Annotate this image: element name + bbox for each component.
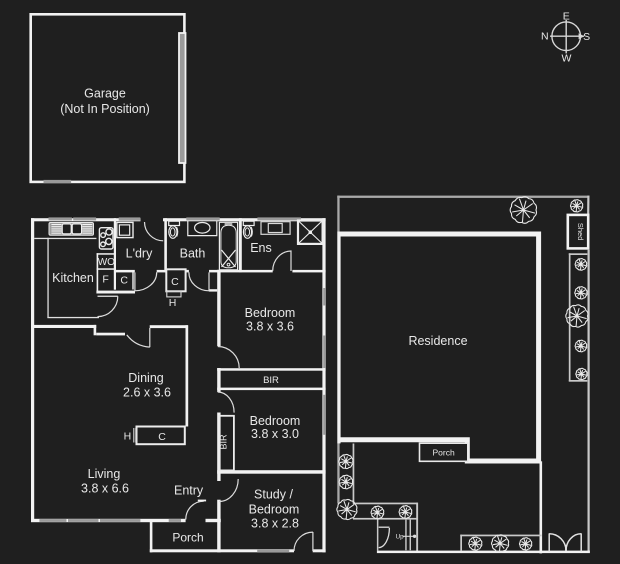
svg-text:Bedroom: Bedroom bbox=[249, 502, 300, 516]
svg-text:Residence: Residence bbox=[408, 334, 467, 348]
svg-text:2.6 x 3.6: 2.6 x 3.6 bbox=[123, 385, 171, 399]
svg-text:N: N bbox=[541, 31, 549, 43]
svg-text:E: E bbox=[563, 11, 570, 23]
svg-text:Entry: Entry bbox=[174, 483, 204, 497]
svg-text:W: W bbox=[561, 52, 571, 64]
svg-text:L'dry: L'dry bbox=[126, 247, 153, 261]
svg-text:C: C bbox=[158, 431, 166, 443]
svg-text:Dining: Dining bbox=[128, 371, 163, 385]
svg-text:Study /: Study / bbox=[254, 488, 293, 502]
svg-text:H: H bbox=[124, 430, 132, 442]
svg-text:S: S bbox=[583, 31, 590, 43]
svg-text:Bedroom: Bedroom bbox=[250, 414, 301, 428]
svg-text:BIR: BIR bbox=[219, 434, 229, 450]
svg-text:Living: Living bbox=[88, 467, 121, 481]
svg-text:C: C bbox=[171, 276, 179, 288]
svg-text:(Not In Position): (Not In Position) bbox=[60, 102, 150, 116]
svg-text:3.8 x 2.8: 3.8 x 2.8 bbox=[251, 516, 299, 530]
svg-text:Ens: Ens bbox=[250, 241, 272, 255]
svg-text:3.8 x 6.6: 3.8 x 6.6 bbox=[81, 481, 129, 495]
svg-text:F: F bbox=[102, 273, 108, 285]
svg-text:Bath: Bath bbox=[180, 247, 206, 261]
svg-text:3.8 x 3.6: 3.8 x 3.6 bbox=[246, 320, 294, 334]
svg-text:WO: WO bbox=[98, 257, 115, 268]
svg-text:Up: Up bbox=[396, 533, 405, 540]
svg-text:Kitchen: Kitchen bbox=[52, 271, 94, 285]
svg-text:BIR: BIR bbox=[263, 375, 279, 386]
svg-text:C: C bbox=[120, 275, 128, 287]
svg-text:Porch: Porch bbox=[172, 530, 203, 544]
svg-text:Shed: Shed bbox=[576, 223, 585, 241]
svg-text:Porch: Porch bbox=[432, 448, 454, 458]
svg-text:H: H bbox=[169, 297, 177, 309]
svg-text:Garage: Garage bbox=[84, 87, 126, 101]
svg-text:Bedroom: Bedroom bbox=[245, 306, 296, 320]
svg-text:3.8 x 3.0: 3.8 x 3.0 bbox=[251, 427, 299, 441]
